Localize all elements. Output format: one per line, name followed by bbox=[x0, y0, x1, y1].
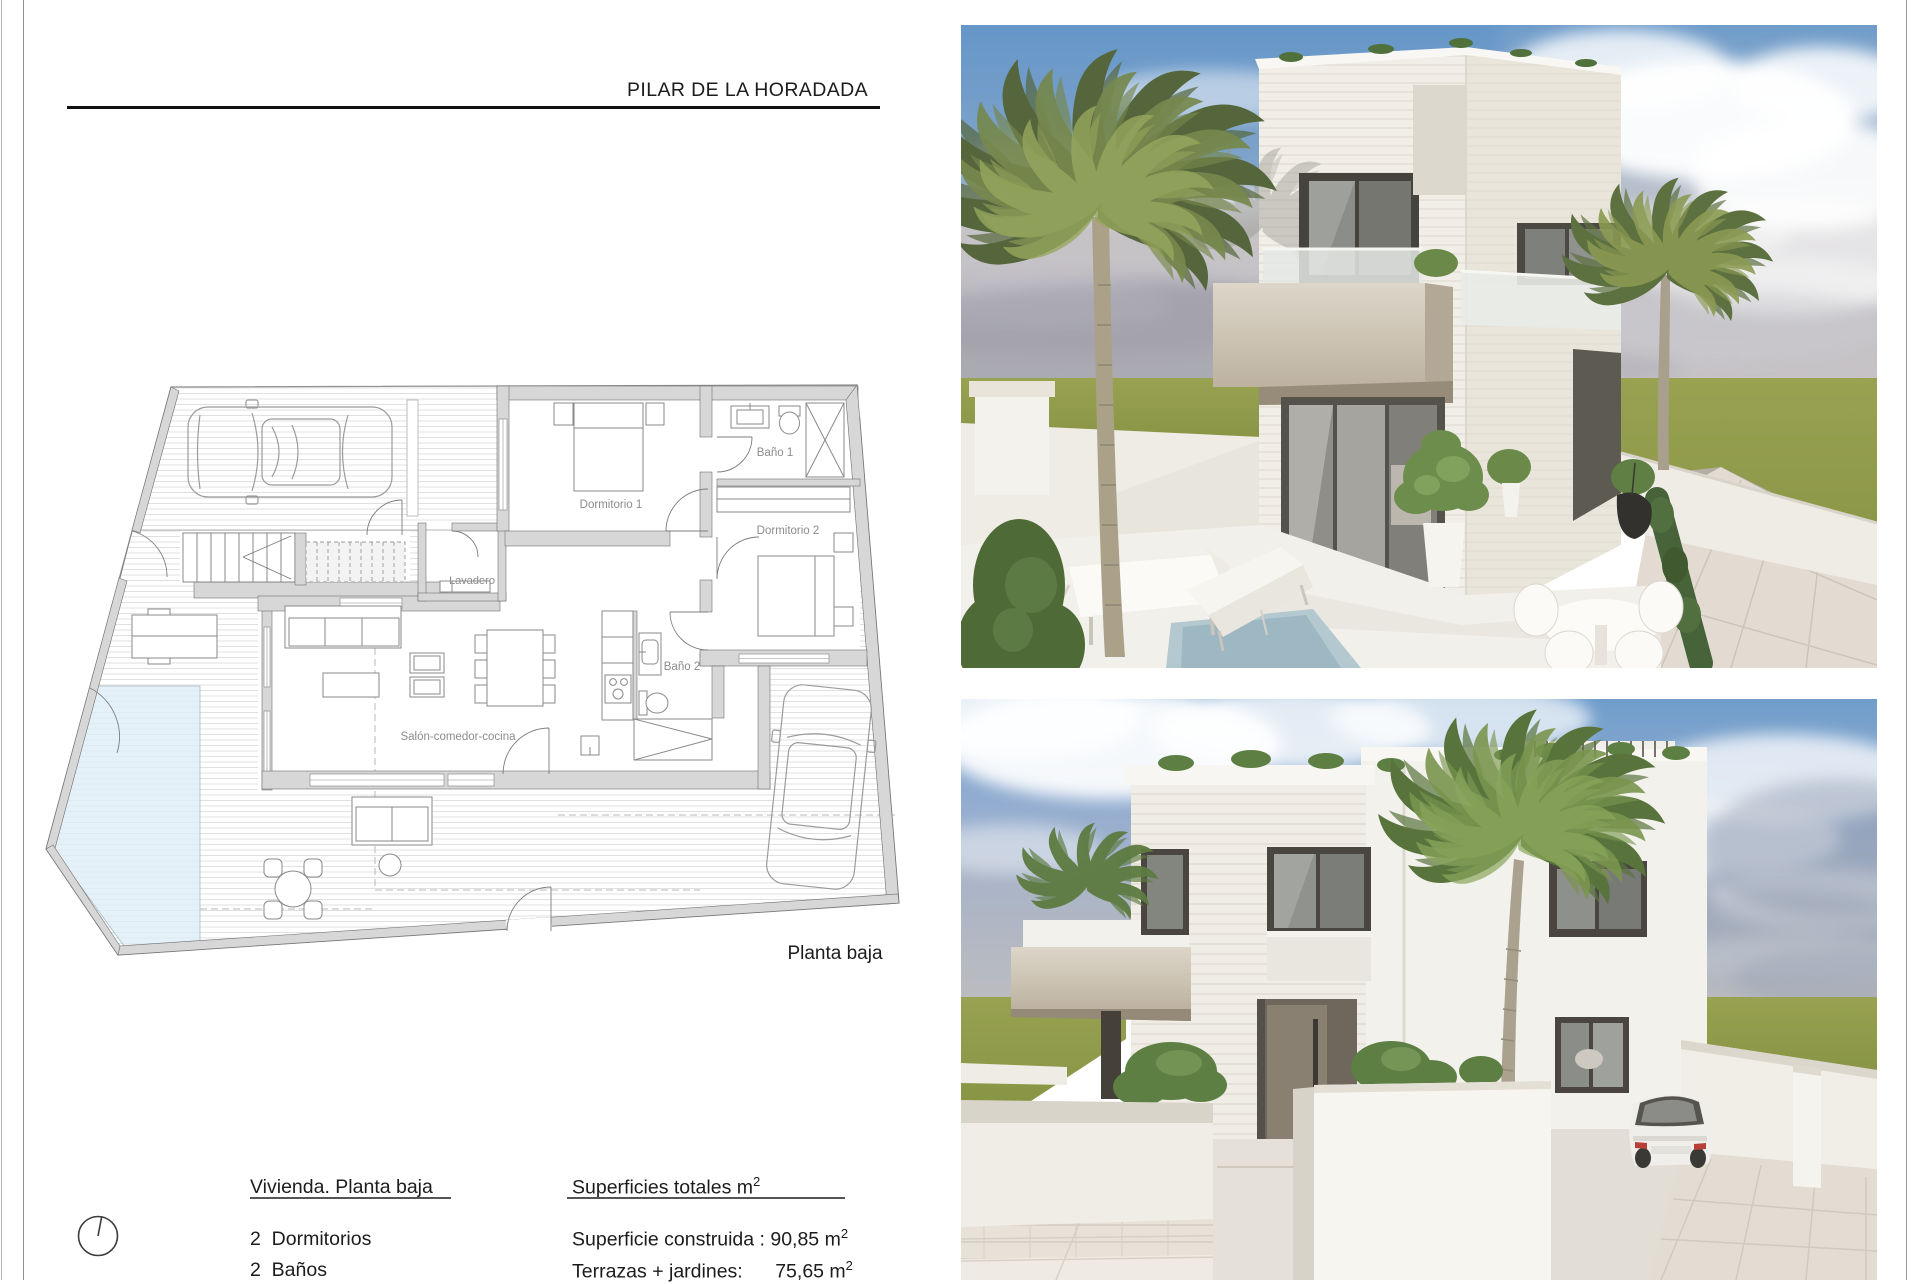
svg-text:Baño 2: Baño 2 bbox=[664, 661, 700, 673]
svg-text:Dormitorio 1: Dormitorio 1 bbox=[580, 499, 643, 511]
svg-text:Baño 1: Baño 1 bbox=[757, 447, 793, 459]
svg-text:Dormitorio 2: Dormitorio 2 bbox=[757, 525, 820, 537]
svg-text:Lavadero: Lavadero bbox=[449, 575, 495, 587]
svg-text:Salón-comedor-cocina: Salón-comedor-cocina bbox=[400, 731, 516, 743]
